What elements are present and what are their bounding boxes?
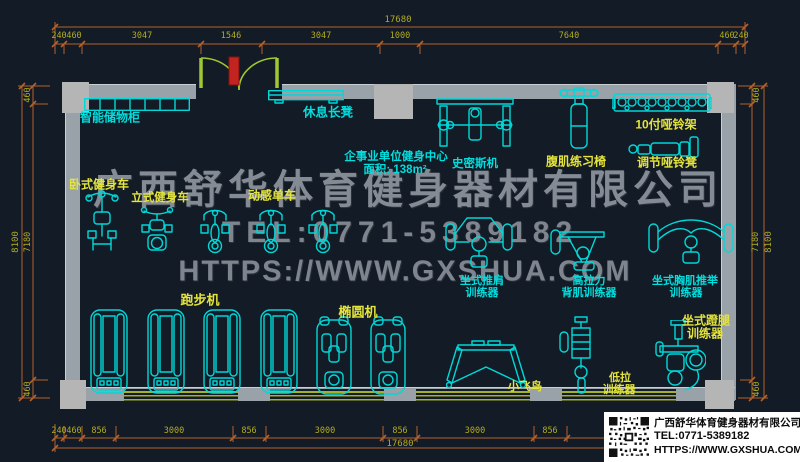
elliptical-icon <box>316 316 352 396</box>
dim-top-seg: 3047 <box>311 31 331 41</box>
cad-floor-plan-canvas: 17680 240 460 3047 1546 3047 1000 7640 4… <box>0 0 800 462</box>
dim-bottom-seg: 3000 <box>164 426 184 436</box>
dim-bottom-seg: 856 <box>542 426 557 436</box>
dim-top-seg: 460 <box>66 31 81 41</box>
dim-bottom-seg: 3000 <box>315 426 335 436</box>
label-upright-bike: 立式健身车 <box>131 189 189 205</box>
label-dumbbell-bench: 调节哑铃凳 <box>637 154 697 171</box>
column-bottom-right <box>705 380 734 409</box>
dim-bottom-seg: 856 <box>91 426 106 436</box>
label-rest-bench: 休息长凳 <box>303 102 353 121</box>
dim-top-seg: 1546 <box>221 31 241 41</box>
dim-right-seg: 7180 <box>751 232 761 252</box>
dim-bottom-seg: 3000 <box>465 426 485 436</box>
dim-bottom-seg: 856 <box>241 426 256 436</box>
label-lockers: 智能储物柜 <box>80 109 140 126</box>
chest-press-icon <box>648 214 734 270</box>
label-leg-press-2: 训练器 <box>687 325 723 342</box>
dim-right-seg: 460 <box>752 381 762 396</box>
spin-bike-icon <box>200 207 230 254</box>
dim-top-total: 17680 <box>384 15 411 25</box>
recumbent-bike-icon <box>85 188 119 252</box>
dim-bottom-seg: 856 <box>392 426 407 436</box>
label-recumbent-bike: 卧式健身车 <box>69 176 129 193</box>
label-smith-machine: 史密斯机 <box>452 155 498 171</box>
dim-top-seg: 240 <box>51 31 66 41</box>
treadmill-icon <box>203 308 241 396</box>
wall-left <box>65 84 80 400</box>
smith-machine-icon <box>436 96 514 153</box>
dim-left-overall: 8100 <box>11 231 21 253</box>
label-shoulder-press-2: 训练器 <box>466 284 499 300</box>
room-area: 面积: 138m² <box>363 161 426 177</box>
column-mid-top <box>374 84 413 119</box>
dim-top-seg: 7640 <box>559 31 579 41</box>
spin-bike-icon <box>308 207 338 254</box>
dim-bottom-seg: 240 <box>51 426 66 436</box>
dim-top-seg: 3047 <box>132 31 152 41</box>
card-company-name: 广西舒华体育健身器材有限公司 <box>654 417 800 430</box>
label-cable-fly: 小飞鸟 <box>508 378 543 394</box>
column-bottom-left <box>60 380 86 409</box>
card-url: HTTPS://WWW.GXSHUA.COM <box>654 444 800 457</box>
label-lat-pulldown-2: 背肌训练器 <box>562 284 617 300</box>
dim-left-seg: 460 <box>23 381 33 396</box>
ab-chair-icon <box>556 86 602 152</box>
label-dumbbell-rack: 10付哑铃架 <box>635 116 696 133</box>
dim-bottom-seg: 460 <box>66 426 81 436</box>
lat-pulldown-icon <box>550 224 614 272</box>
card-tel: TEL:0771-5389182 <box>654 430 800 444</box>
treadmill-icon <box>260 308 298 396</box>
elliptical-icon <box>370 316 406 396</box>
dim-right-seg: 460 <box>752 87 762 102</box>
dumbbell-rack-icon <box>612 92 712 115</box>
spin-bike-icon <box>256 207 286 254</box>
company-info-card: 广西舒华体育健身器材有限公司 TEL:0771-5389182 HTTPS://… <box>604 412 800 462</box>
dim-top-seg: 1000 <box>390 31 410 41</box>
dim-bottom-total: 17680 <box>386 439 413 449</box>
label-ab-chair: 腹肌练习椅 <box>546 153 606 170</box>
upright-bike-icon <box>140 204 174 254</box>
low-row-icon <box>558 316 604 394</box>
door-marker <box>229 57 239 85</box>
treadmill-icon <box>90 308 128 396</box>
label-treadmill: 跑步机 <box>180 290 219 309</box>
dim-left-seg: 7180 <box>23 232 33 252</box>
shoulder-press-icon <box>445 212 513 274</box>
dim-left-seg: 460 <box>23 87 33 102</box>
label-chest-press-2: 训练器 <box>670 284 703 300</box>
label-spin-bike: 动感单车 <box>248 187 296 204</box>
dim-right-overall: 8100 <box>764 231 774 253</box>
label-low-row-2: 训练器 <box>603 381 636 397</box>
dim-top-seg: 240 <box>733 31 748 41</box>
treadmill-icon <box>147 308 185 396</box>
label-elliptical: 椭圆机 <box>338 302 377 321</box>
qr-code <box>609 417 649 457</box>
